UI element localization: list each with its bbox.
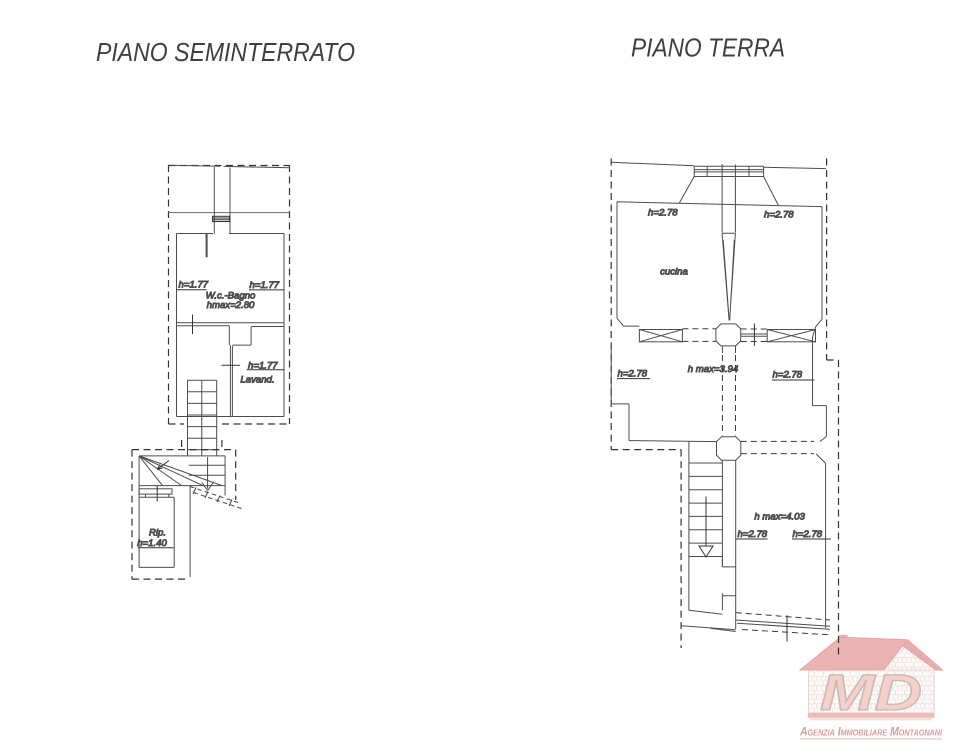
svg-text:MD: MD (820, 664, 922, 721)
svg-text:Rip.: Rip. (149, 528, 166, 539)
svg-text:h max=4.03: h max=4.03 (754, 512, 805, 523)
svg-text:h=2.78: h=2.78 (738, 529, 768, 540)
svg-text:h max=3.94: h max=3.94 (688, 364, 738, 375)
svg-text:Agenzia Immobiliare Montagnani: Agenzia Immobiliare Montagnani (799, 727, 943, 739)
svg-text:Lavand.: Lavand. (240, 375, 274, 386)
svg-text:PIANO SEMINTERRATO: PIANO SEMINTERRATO (96, 37, 355, 67)
svg-text:h=2.78: h=2.78 (618, 368, 648, 379)
svg-text:PIANO TERRA: PIANO TERRA (631, 33, 785, 63)
svg-text:hmax=2.80: hmax=2.80 (207, 300, 255, 311)
svg-text:cucina: cucina (660, 267, 688, 278)
svg-text:h=2.78: h=2.78 (793, 529, 823, 540)
svg-text:h=2.78: h=2.78 (764, 210, 794, 221)
svg-text:h=1.77: h=1.77 (250, 280, 280, 291)
svg-text:h=2.78: h=2.78 (648, 208, 678, 219)
svg-text:h=2.78: h=2.78 (773, 370, 803, 381)
svg-text:h=1.77: h=1.77 (179, 280, 209, 291)
